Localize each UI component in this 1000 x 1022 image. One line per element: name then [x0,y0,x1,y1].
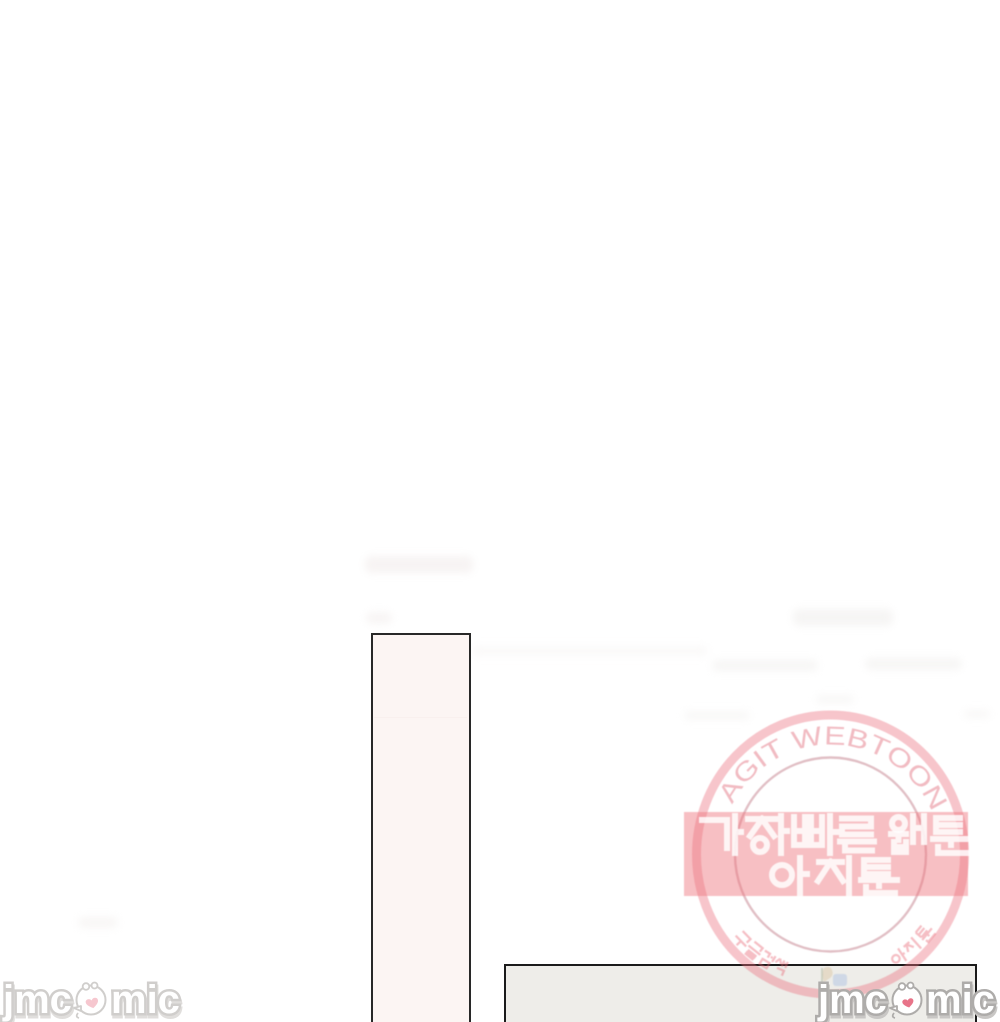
svg-text:jmc: jmc [817,978,887,1022]
svg-text:AGIT WEBTOON: AGIT WEBTOON [712,720,954,815]
svg-text:mic: mic [111,978,180,1022]
svg-text:mic: mic [926,978,995,1022]
svg-text:jmc: jmc [2,978,72,1022]
